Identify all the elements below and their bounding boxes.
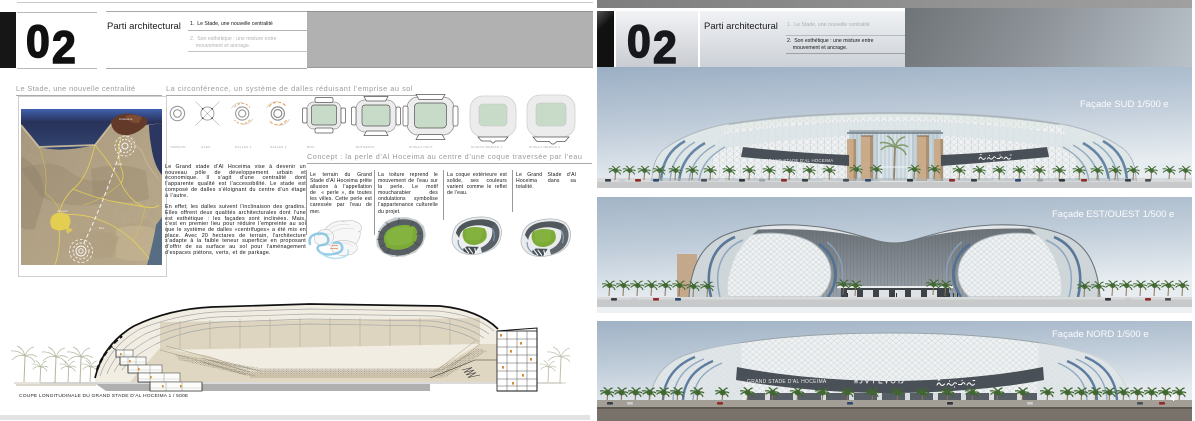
svg-text:ENTRESOL: ENTRESOL: [356, 145, 375, 149]
svg-text:DALLES 1: DALLES 1: [235, 145, 252, 149]
svg-text:AXES: AXES: [201, 145, 210, 149]
svg-text:Ajdir: Ajdir: [117, 162, 122, 166]
svg-text:DALLES 2: DALLES 2: [270, 145, 287, 149]
svg-text:GRAND STADE D'AL HOCEIMA: GRAND STADE D'AL HOCEIMA: [765, 158, 833, 163]
svg-text:Imzouren: Imzouren: [57, 209, 68, 213]
svg-text:RDC: RDC: [307, 145, 315, 149]
svg-text:Façade NORD 1/500 e: Façade NORD 1/500 e: [1052, 329, 1149, 340]
svg-text:NIVEAU HAUT: NIVEAU HAUT: [409, 145, 433, 149]
svg-text:GRAND STADE D'AL HOCEIMA: GRAND STADE D'AL HOCEIMA: [747, 379, 827, 385]
svg-text:NIVEAU MEDIAS 2: NIVEAU MEDIAS 2: [529, 145, 560, 149]
svg-text:Al Hoceima: Al Hoceima: [119, 117, 133, 121]
svg-text:4: 4: [1170, 393, 1175, 403]
svg-text:Façade SUD 1/500 e: Façade SUD 1/500 e: [1080, 99, 1169, 110]
svg-text:Façade EST/OUEST 1/500 e: Façade EST/OUEST 1/500 e: [1052, 209, 1174, 220]
svg-text:TERRAIN: TERRAIN: [170, 145, 186, 149]
svg-text:Beni: Beni: [99, 226, 105, 230]
svg-text:NIVEAU MEDIAS 1: NIVEAU MEDIAS 1: [471, 145, 502, 149]
